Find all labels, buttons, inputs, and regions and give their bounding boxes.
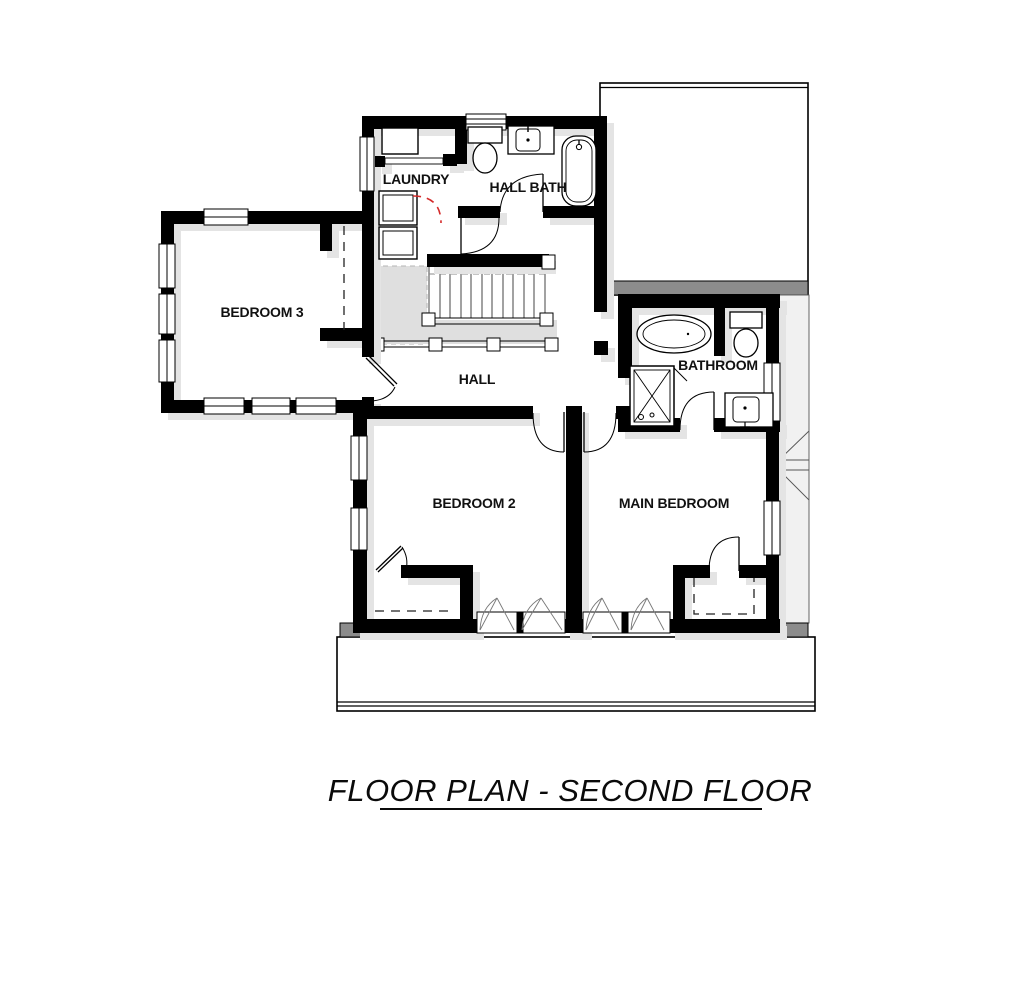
- door-bedroom-2: [533, 412, 564, 452]
- sink-vanity: [725, 393, 773, 430]
- room-label-bedroom-3: BEDROOM 3: [221, 304, 304, 320]
- door-main-bedroom-closet: [709, 537, 739, 571]
- stair-treads: [429, 267, 547, 318]
- window: [159, 244, 175, 288]
- window: [764, 501, 780, 555]
- roof-area-bottom: [337, 623, 815, 711]
- bathtub: [562, 136, 596, 206]
- floor-plan-drawing: LAUNDRY HALL BATH BEDROOM 3 HALL BATHROO…: [0, 0, 1024, 981]
- dryer: [379, 227, 417, 259]
- drawing-title: FLOOR PLAN - SECOND FLOOR: [328, 773, 812, 809]
- window: [159, 294, 175, 334]
- closet-outline-main-bedroom: [694, 578, 754, 614]
- shower: [630, 366, 687, 426]
- room-label-bedroom-2: BEDROOM 2: [433, 495, 516, 511]
- sink-vanity: [508, 126, 554, 154]
- window: [351, 436, 367, 480]
- window: [252, 398, 290, 414]
- laundry-counter: [382, 128, 418, 154]
- laundry-bifold-door: [385, 158, 443, 164]
- staircase: [371, 266, 558, 351]
- window: [204, 209, 248, 225]
- door-bathroom: [680, 392, 714, 430]
- door-main-bedroom: [584, 412, 616, 452]
- stair-newel-post: [542, 255, 555, 269]
- room-label-laundry: LAUNDRY: [383, 171, 450, 187]
- door-landing: [461, 218, 499, 254]
- room-label-bathroom: BATHROOM: [678, 357, 758, 373]
- washer: [379, 191, 417, 225]
- door-bedroom-3: [366, 356, 397, 401]
- roof-area-upper-right: [600, 83, 808, 295]
- window: [296, 398, 336, 414]
- room-label-hall: HALL: [459, 371, 496, 387]
- toilet: [468, 127, 502, 173]
- eave-strip-right: [779, 295, 809, 623]
- window: [360, 137, 374, 191]
- window: [351, 508, 367, 550]
- window: [159, 340, 175, 382]
- bathtub: [637, 315, 711, 353]
- drawing-title-text: FLOOR PLAN - SECOND FLOOR: [328, 773, 812, 808]
- window: [204, 398, 244, 414]
- toilet: [730, 312, 762, 357]
- room-label-hall-bath: HALL BATH: [489, 179, 566, 195]
- room-label-main-bedroom: MAIN BEDROOM: [619, 495, 729, 511]
- floor-plan-page: LAUNDRY HALL BATH BEDROOM 3 HALL BATHROO…: [0, 0, 1024, 981]
